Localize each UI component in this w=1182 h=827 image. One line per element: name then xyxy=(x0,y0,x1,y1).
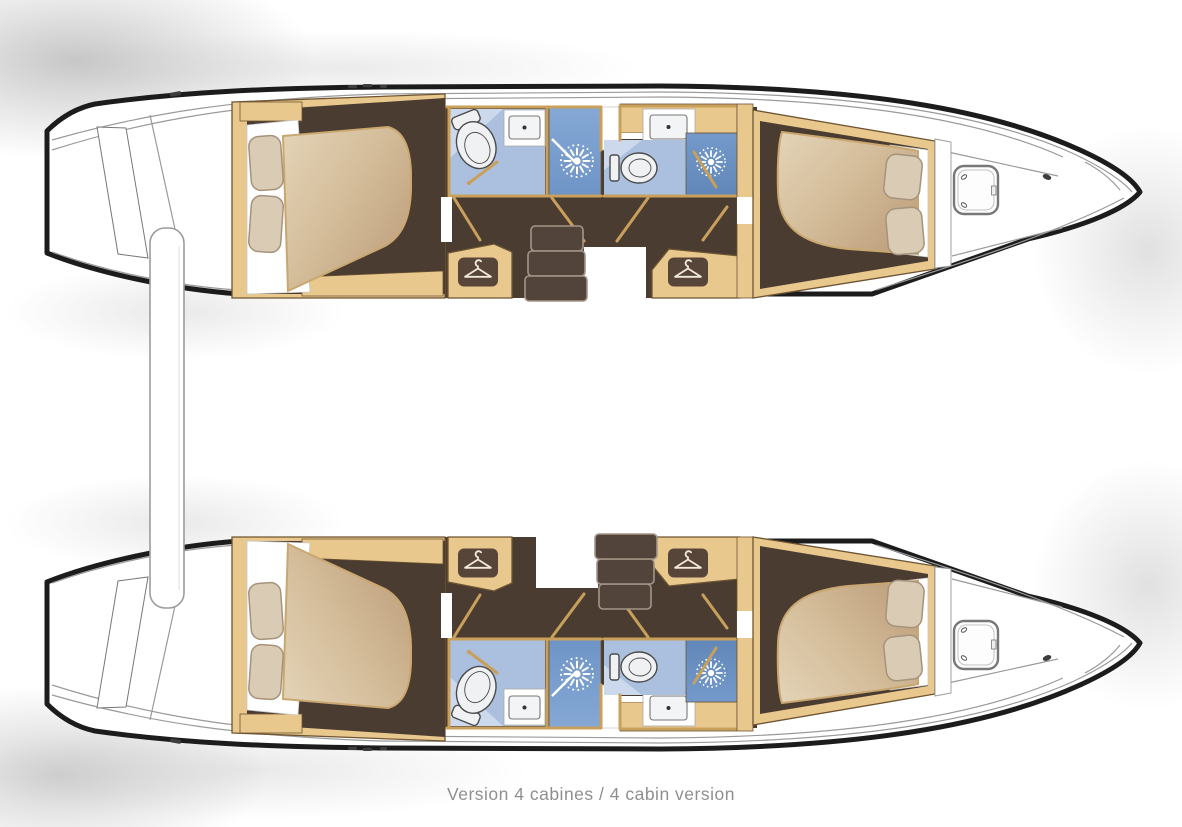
wardrobe-hanger-icon xyxy=(668,258,708,287)
floor-plan-drawing xyxy=(0,0,1182,827)
wardrobe-hanger-icon xyxy=(668,549,708,578)
wardrobe-hanger-icon xyxy=(458,258,498,287)
catamaran-floor-plan: Version 4 cabines / 4 cabin version xyxy=(0,0,1182,827)
transom-platform xyxy=(150,228,184,608)
caption: Version 4 cabines / 4 cabin version xyxy=(0,784,1182,805)
wardrobe-hanger-icon xyxy=(458,549,498,578)
